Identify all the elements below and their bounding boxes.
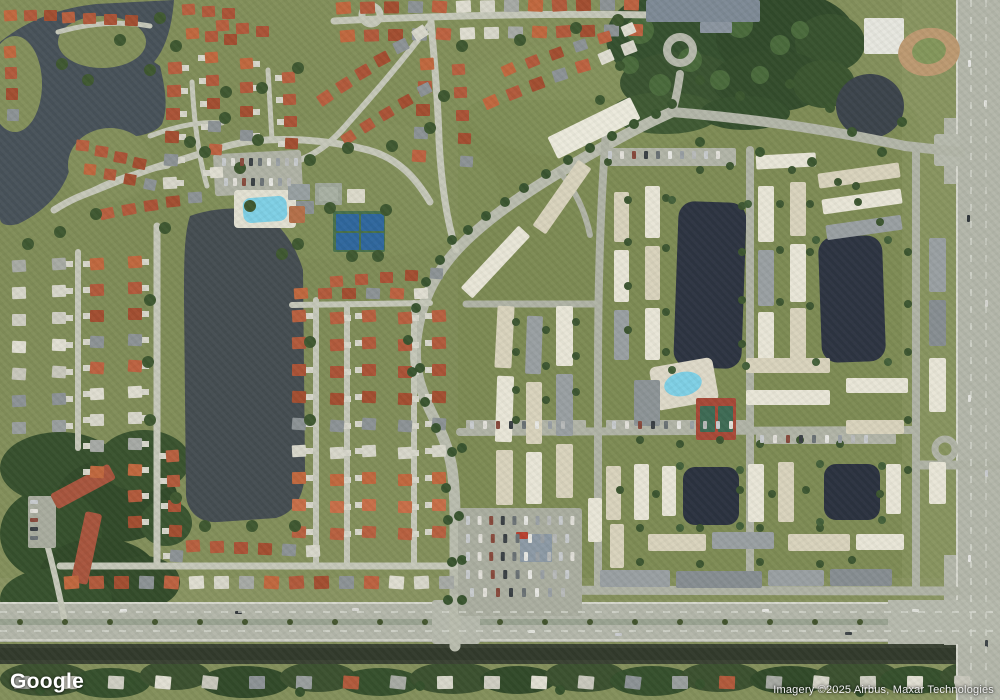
satellite-imagery (0, 0, 1000, 700)
satellite-map-viewport[interactable]: Google Imagery ©2025 Airbus, Maxar Techn… (0, 0, 1000, 700)
google-logo[interactable]: Google (10, 670, 84, 694)
map-attribution: Imagery ©2025 Airbus, Maxar Technologies (773, 684, 994, 696)
